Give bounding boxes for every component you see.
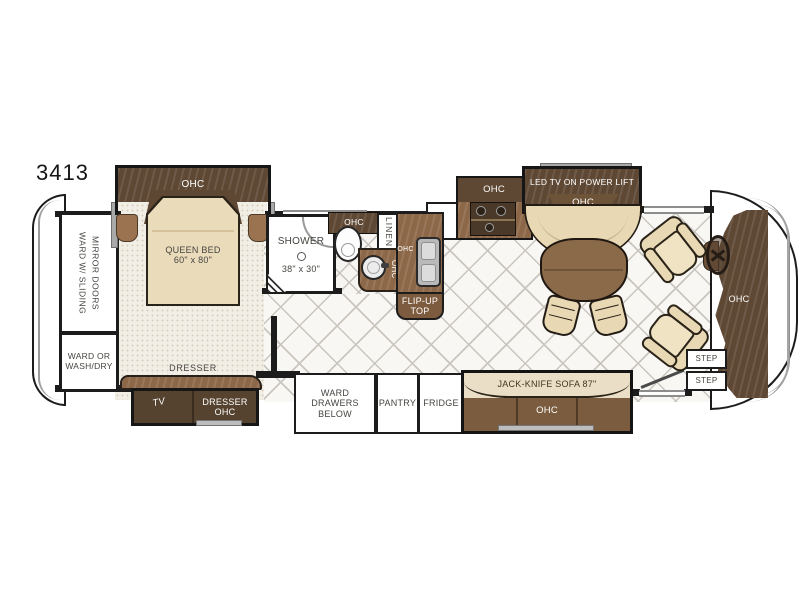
linen-label: LINEN xyxy=(384,217,394,247)
burner-icon xyxy=(485,223,494,232)
chair-cushion-seam xyxy=(595,304,621,320)
sofa-slideout: JACK-KNIFE SOFA 87" OHC xyxy=(461,370,633,434)
dash-ohc-label: OHC xyxy=(716,293,762,306)
ward-drawers-line2: DRAWERS xyxy=(311,398,358,408)
pantry-cabinet: PANTRY xyxy=(376,373,419,434)
dinette-table xyxy=(540,238,628,302)
dresser-text: DRESSER xyxy=(169,363,217,373)
ward-drawers-cabinet: WARD DRAWERS BELOW xyxy=(294,373,376,434)
sofa-ohc-label: OHC xyxy=(517,404,577,418)
dresser-label: DRESSER xyxy=(140,362,246,374)
shower-label: SHOWER xyxy=(270,236,332,248)
dresser-ohc-line2: OHC xyxy=(215,407,236,417)
sofa-ohc-text: OHC xyxy=(536,406,558,417)
dresser-slide-handle xyxy=(196,420,242,426)
dresser-tv-slideout: TV DRESSER OHC xyxy=(131,388,259,426)
model-number-text: 3413 xyxy=(36,160,89,185)
entry-door-window xyxy=(639,390,685,397)
ward-drawers-line3: BELOW xyxy=(318,409,352,419)
shower-size-label: 38" x 30" xyxy=(270,264,332,275)
flip-up-line1: FLIP-UP xyxy=(402,296,438,306)
step-upper-label: STEP xyxy=(696,355,718,364)
fridge-label: FRIDGE xyxy=(423,398,459,408)
shower-label-line1: SHOWER xyxy=(278,236,325,247)
queen-bed-label-line2: 60" x 80" xyxy=(174,255,212,265)
sofa-label: JACK-KNIFE SOFA 87" xyxy=(498,379,597,389)
kitchen-sink-ohc-label: OHC xyxy=(396,245,415,255)
vanity-sink-ring xyxy=(367,261,380,274)
sofa-slide-handle xyxy=(498,425,594,431)
queen-bed-label-line1: QUEEN BED xyxy=(165,245,220,255)
rv-floorplan: OHC WARD W/ SLIDING MIRROR DOORS WARD OR… xyxy=(0,0,800,600)
burner-icon xyxy=(476,206,486,216)
sink-bowl-bottom xyxy=(421,264,436,282)
ward-drawers-line1: WARD xyxy=(321,388,349,398)
led-tv-label: LED TV ON POWER LIFT xyxy=(527,176,637,189)
fridge: FRIDGE xyxy=(418,373,464,434)
table-leaf-seam xyxy=(544,269,623,271)
toilet-bowl-ring xyxy=(341,243,355,257)
ward-sliding-mirror-cabinet: WARD W/ SLIDING MIRROR DOORS xyxy=(59,212,119,334)
cooktop-divider xyxy=(471,219,515,221)
hall-divider-wall xyxy=(271,316,277,374)
shower-drain-icon xyxy=(297,252,306,261)
sink-bowl-top xyxy=(421,242,436,260)
ward-washdry-cabinet: WARD OR WASH/DRY xyxy=(59,332,119,392)
ward-sliding-label-line2: MIRROR DOORS xyxy=(91,236,101,310)
bed-ohc-text: OHC xyxy=(182,179,205,190)
led-tv-text: LED TV ON POWER LIFT xyxy=(530,178,634,188)
rear-cap-trim-line xyxy=(38,200,60,400)
ward-washdry-label-line2: WASH/DRY xyxy=(65,362,112,372)
pantry-label: PANTRY xyxy=(379,398,416,408)
shower-label-line2: 38" x 30" xyxy=(282,264,320,274)
step-lower-label: STEP xyxy=(696,377,718,386)
kitchen-sink-icon xyxy=(416,237,441,287)
cooktop-icon xyxy=(470,202,516,236)
dresser-ohc-line1: DRESSER xyxy=(202,397,247,407)
sofa-back-cushion: JACK-KNIFE SOFA 87" xyxy=(464,373,630,398)
galley-ohc-text: OHC xyxy=(483,185,505,196)
tv-label: TV xyxy=(143,392,176,414)
dash-ohc-text: OHC xyxy=(729,294,750,304)
flip-up-line2: TOP xyxy=(410,306,429,316)
floorplan-model-number: 3413 xyxy=(36,160,136,186)
tv-text: TV xyxy=(152,396,167,409)
flip-up-top-counter: FLIP-UP TOP xyxy=(396,292,444,320)
entry-step-lower: STEP xyxy=(686,371,727,391)
ward-sliding-label-line1: WARD W/ SLIDING xyxy=(78,232,88,314)
kitchen-sink-ohc-text: OHC xyxy=(397,246,413,254)
entry-step-upper: STEP xyxy=(686,349,727,369)
pillow-seam-line xyxy=(152,230,234,232)
galley-ohc-cabinet: OHC xyxy=(458,178,530,202)
nightstand-left xyxy=(116,214,138,242)
queen-bed-label: QUEEN BED 60" x 80" xyxy=(156,242,230,268)
chair-cushion-seam xyxy=(549,304,575,320)
burner-icon xyxy=(496,206,506,216)
dresser-ohc-label: DRESSER OHC xyxy=(194,394,256,420)
